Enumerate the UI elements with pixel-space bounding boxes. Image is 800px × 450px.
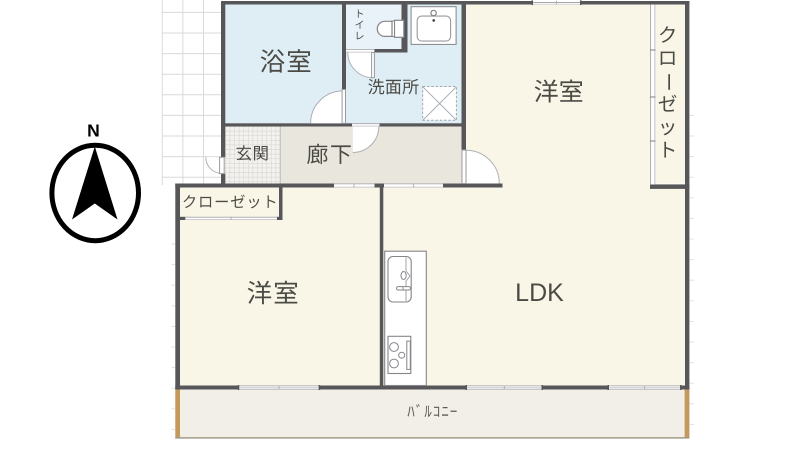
svg-text:LDK: LDK — [515, 279, 564, 307]
svg-text:N: N — [87, 121, 100, 141]
